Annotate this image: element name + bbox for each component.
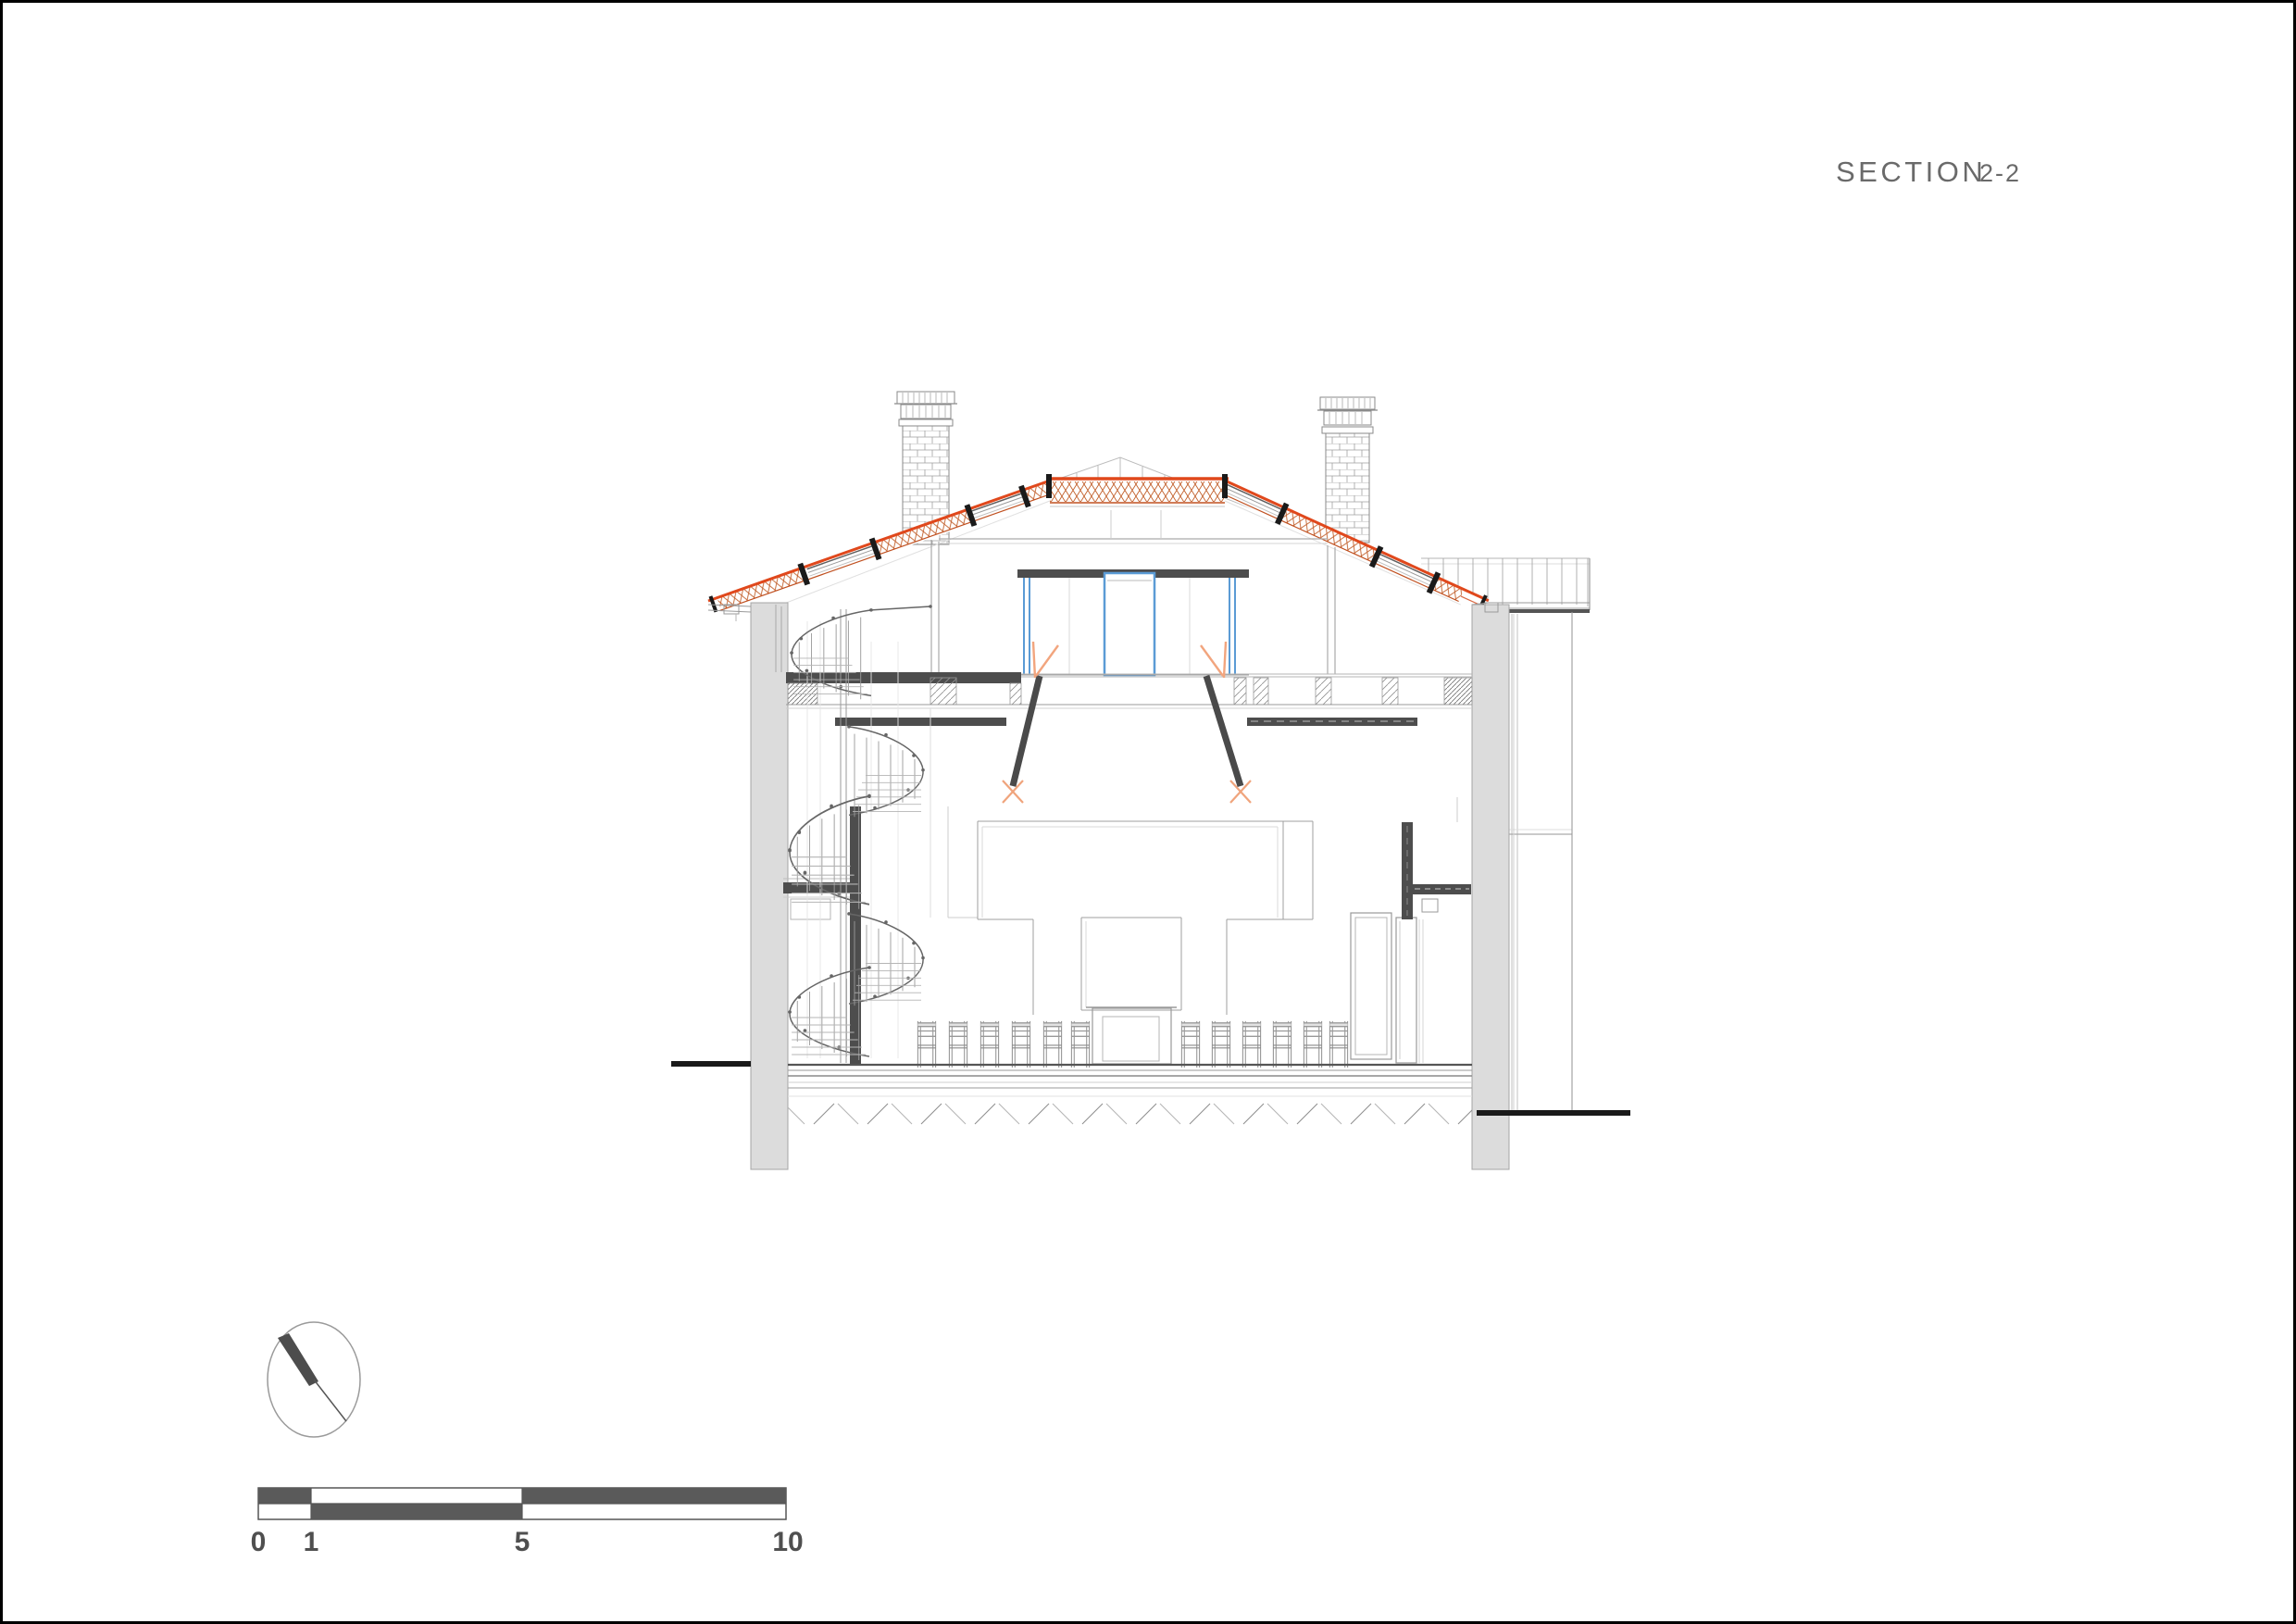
ground-hatch [788, 1099, 1472, 1127]
chair [1329, 1021, 1347, 1068]
floor-assembly [788, 1065, 1472, 1127]
back-wall-elevation [978, 821, 1313, 1015]
chair [1273, 1021, 1291, 1068]
title-block: SECTION 2-2 [1836, 156, 2021, 188]
chimney-right [1317, 397, 1378, 543]
chair [1043, 1021, 1061, 1068]
attic-glazed-partition [1024, 573, 1235, 675]
chair [1012, 1021, 1029, 1068]
exterior-wall-left [751, 603, 788, 1169]
partition-right [1402, 822, 1413, 919]
section-drawing: 0 1 5 10 SECTION 2-2 [3, 3, 2296, 1624]
page-title-number: 2-2 [1979, 159, 2021, 187]
scale-label-10: 10 [772, 1527, 803, 1557]
attic-room-wall-left [931, 540, 939, 672]
page-title: SECTION [1836, 156, 1986, 188]
downspout [1512, 614, 1517, 1110]
scale-label-1: 1 [304, 1527, 319, 1557]
north-arrow-icon [268, 1322, 360, 1437]
exterior-wall-right [1472, 605, 1509, 1169]
wall-box [1422, 899, 1438, 912]
hall-interior [917, 708, 1471, 1068]
attic-room-wall-right [1328, 545, 1335, 674]
chair [1242, 1021, 1260, 1068]
ceiling-beam-left [835, 718, 1006, 726]
scale-label-0: 0 [251, 1527, 267, 1557]
door-swing-marks [1003, 781, 1251, 803]
drawing-sheet: 0 1 5 10 SECTION 2-2 [0, 0, 2296, 1624]
chair [917, 1021, 935, 1068]
attic-floor-slab [786, 672, 1021, 683]
attic-glazed-door [1104, 573, 1154, 675]
ground-line-right [1477, 1110, 1630, 1116]
chair [1212, 1021, 1229, 1068]
roof-ridge-band [1046, 474, 1229, 505]
chair [949, 1021, 967, 1068]
chair [1181, 1021, 1199, 1068]
lectern [1086, 1007, 1177, 1064]
slab-right [1413, 884, 1471, 894]
chair [980, 1021, 998, 1068]
scale-bar: 0 1 5 10 [251, 1488, 804, 1557]
ground-line-left [671, 1061, 751, 1067]
scale-label-5: 5 [515, 1527, 530, 1557]
chair [1304, 1021, 1321, 1068]
chair [1071, 1021, 1089, 1068]
double-door-right [1351, 913, 1416, 1063]
roof-left-slope [706, 476, 1055, 618]
stair-partition-wall [850, 806, 861, 1065]
